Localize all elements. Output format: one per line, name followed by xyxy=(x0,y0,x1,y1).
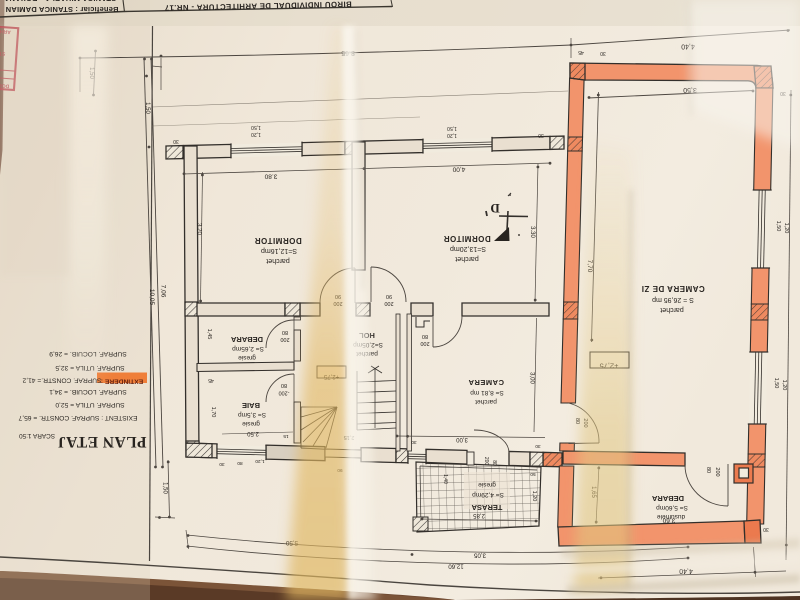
svg-text:45: 45 xyxy=(208,377,214,383)
svg-text:80: 80 xyxy=(491,460,497,466)
svg-text:1,50: 1,50 xyxy=(251,124,261,130)
svg-text:200: 200 xyxy=(420,340,429,346)
svg-text:4,00: 4,00 xyxy=(452,166,465,173)
svg-text:1,20: 1,20 xyxy=(251,131,261,137)
svg-text:S = 26,95 mp: S = 26,95 mp xyxy=(652,296,694,303)
svg-text:3,05: 3,05 xyxy=(473,552,486,559)
svg-text:80: 80 xyxy=(281,382,287,388)
svg-text:1,50: 1,50 xyxy=(144,102,150,114)
svg-text:parchet: parchet xyxy=(266,257,289,264)
svg-text:200: 200 xyxy=(483,457,489,466)
svg-text:1,20: 1,20 xyxy=(255,458,265,464)
svg-text:1,50: 1,50 xyxy=(775,221,781,232)
svg-text:200: 200 xyxy=(714,467,720,476)
svg-text:80: 80 xyxy=(422,333,428,339)
svg-text:15: 15 xyxy=(283,433,289,439)
svg-text:30: 30 xyxy=(600,50,606,56)
svg-text:DORMITOR: DORMITOR xyxy=(443,234,490,243)
svg-text:1,50: 1,50 xyxy=(162,482,168,494)
svg-text:CAMERA: CAMERA xyxy=(468,378,504,387)
svg-text:12,60: 12,60 xyxy=(448,563,464,570)
svg-text:3.20: 3.20 xyxy=(196,223,202,235)
svg-text:Beneficiar : STANICA DAMIAN: Beneficiar : STANICA DAMIAN xyxy=(6,5,119,14)
svg-text:gresie: gresie xyxy=(478,481,496,488)
svg-text:1,20: 1,20 xyxy=(783,223,789,234)
svg-text:45: 45 xyxy=(578,49,584,55)
svg-text:3,00: 3,00 xyxy=(456,436,468,442)
svg-text:30: 30 xyxy=(538,132,544,138)
svg-text:S= 8,81 mp: S= 8,81 mp xyxy=(470,389,504,396)
svg-text:90: 90 xyxy=(386,293,392,299)
svg-text:SCARA 1:50: SCARA 1:50 xyxy=(19,432,55,439)
svg-text:200: 200 xyxy=(280,336,289,342)
svg-text:SUPRAF. UTILA = 52,0: SUPRAF. UTILA = 52,0 xyxy=(55,401,125,408)
svg-text:parchet: parchet xyxy=(660,306,683,313)
svg-text:30: 30 xyxy=(219,461,225,467)
svg-text:80: 80 xyxy=(282,329,288,335)
svg-text:10,05: 10,05 xyxy=(148,289,155,306)
svg-text:1,20: 1,20 xyxy=(447,132,457,138)
svg-text:D: D xyxy=(490,201,499,216)
svg-text:parchet: parchet xyxy=(455,255,478,262)
svg-text:1,50: 1,50 xyxy=(773,378,779,389)
svg-text:80: 80 xyxy=(237,460,243,466)
svg-text:3,00: 3,00 xyxy=(529,372,535,384)
svg-text:DEBARA: DEBARA xyxy=(230,335,263,344)
svg-text:1,20: 1,20 xyxy=(781,380,787,391)
svg-text:gresie: gresie xyxy=(238,354,256,361)
svg-text:3.30: 3.30 xyxy=(529,226,535,238)
svg-text:200: 200 xyxy=(384,300,393,306)
svg-text:STANICA MIHAELA - ROXANA: STANICA MIHAELA - ROXANA xyxy=(3,0,116,3)
svg-text:CAMERA DE ZI: CAMERA DE ZI xyxy=(641,284,704,293)
svg-text:BAIE: BAIE xyxy=(242,401,260,410)
svg-text:50: 50 xyxy=(530,471,536,477)
svg-text:EXISTENT : SUPRAF. CONSTR. =: EXISTENT : SUPRAF. CONSTR. = 65,7 xyxy=(18,414,137,421)
svg-text:TERASA: TERASA xyxy=(471,503,502,512)
svg-text:parchet: parchet xyxy=(475,398,497,405)
svg-text:30: 30 xyxy=(763,526,769,532)
svg-text:7,06: 7,06 xyxy=(160,285,167,298)
svg-text:3.80: 3.80 xyxy=(264,173,277,180)
svg-text:1,20: 1,20 xyxy=(531,491,537,502)
svg-text:1,40: 1,40 xyxy=(442,474,448,484)
svg-text:80: 80 xyxy=(705,467,711,473)
svg-text:1,70: 1,70 xyxy=(210,407,216,418)
svg-text:DORMITOR: DORMITOR xyxy=(254,236,301,245)
svg-text:S=13,20mp: S=13,20mp xyxy=(450,245,486,252)
svg-text:S= 5,60mp: S= 5,60mp xyxy=(656,504,688,511)
svg-text:S= 3,5mp: S= 3,5mp xyxy=(238,411,266,418)
svg-text:DEBARA: DEBARA xyxy=(651,494,684,503)
svg-text:EXTINDERE :: EXTINDERE : xyxy=(101,378,143,385)
svg-text:30: 30 xyxy=(173,138,179,144)
svg-text:S=12,16mp: S=12,16mp xyxy=(261,247,297,254)
svg-text:gresie: gresie xyxy=(242,420,260,427)
svg-text:80: 80 xyxy=(574,418,580,424)
svg-text:1,50: 1,50 xyxy=(447,125,457,131)
svg-text:30: 30 xyxy=(411,439,417,445)
svg-text:PLAN ETAJ: PLAN ETAJ xyxy=(57,433,146,450)
svg-text:-200: -200 xyxy=(278,390,289,396)
svg-text:dusumele: dusumele xyxy=(657,513,686,520)
svg-text:2,85: 2,85 xyxy=(473,512,485,518)
svg-text:1,45: 1,45 xyxy=(206,329,212,340)
svg-text:S= 4,29mp: S= 4,29mp xyxy=(472,491,504,498)
svg-text:30: 30 xyxy=(535,443,541,449)
svg-text:S= 2,65mp: S= 2,65mp xyxy=(232,345,264,352)
